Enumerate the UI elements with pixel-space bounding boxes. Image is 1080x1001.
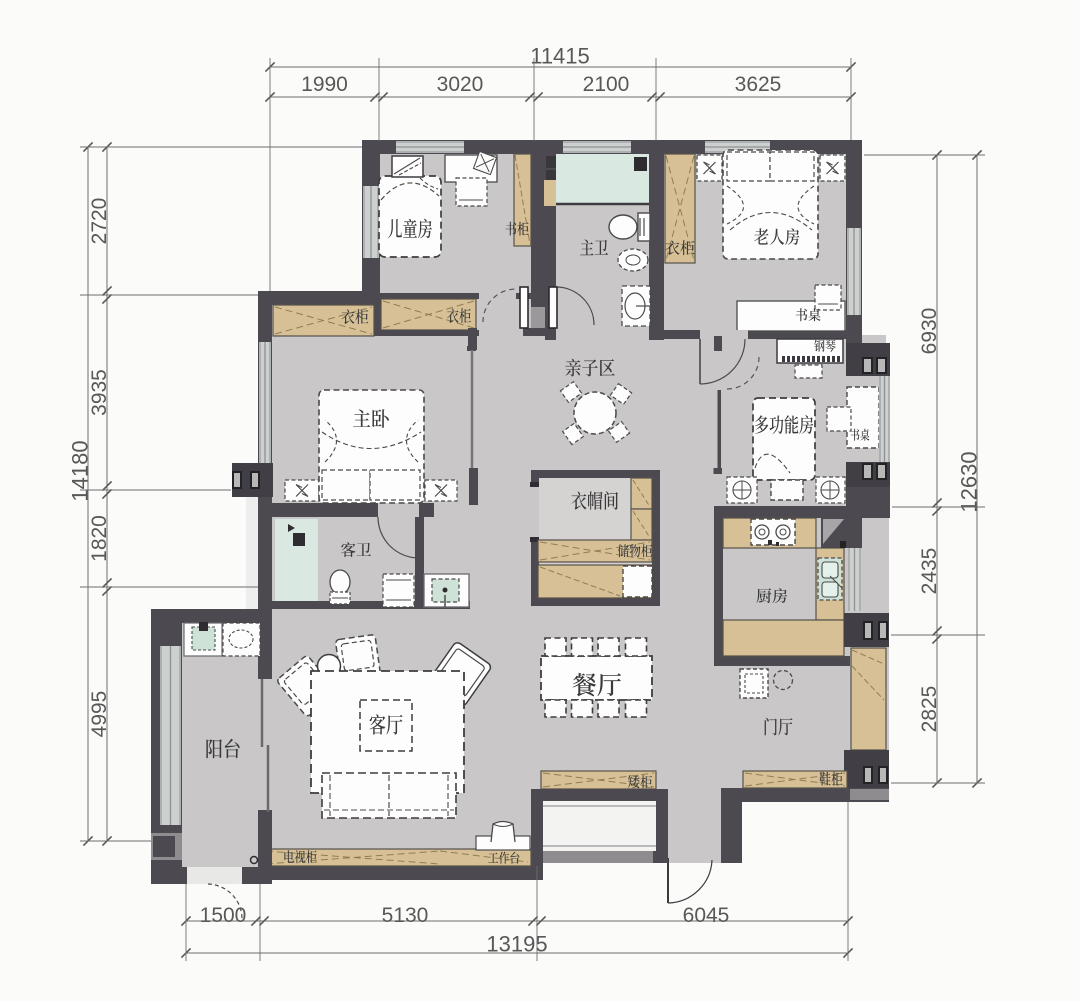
svg-text:1500: 1500 <box>200 904 247 927</box>
svg-text:2825: 2825 <box>918 686 941 733</box>
svg-text:13195: 13195 <box>486 931 547 956</box>
svg-text:3935: 3935 <box>88 369 111 416</box>
svg-text:6045: 6045 <box>683 904 730 927</box>
svg-text:3625: 3625 <box>735 73 782 96</box>
svg-text:2435: 2435 <box>918 548 941 595</box>
svg-text:4995: 4995 <box>88 691 111 738</box>
svg-text:1990: 1990 <box>301 73 348 96</box>
svg-text:5130: 5130 <box>382 904 429 927</box>
svg-text:6930: 6930 <box>918 308 941 355</box>
svg-text:2100: 2100 <box>583 73 630 96</box>
svg-text:3020: 3020 <box>437 73 484 96</box>
svg-text:11415: 11415 <box>530 43 590 68</box>
svg-text:1820: 1820 <box>88 515 111 562</box>
svg-text:12630: 12630 <box>956 451 981 512</box>
svg-text:2720: 2720 <box>88 198 111 245</box>
svg-text:14180: 14180 <box>67 440 92 501</box>
